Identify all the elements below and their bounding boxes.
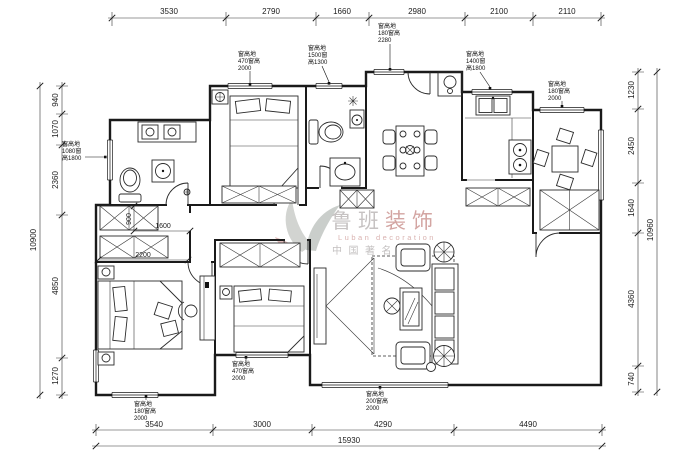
dim-label: 1600 [155,223,171,230]
dim-right: 1230 2450 1640 4360 740 10960 [627,68,660,396]
svg-text:窗高地: 窗高地 [62,140,80,148]
room-bedroom1 [212,90,298,203]
plant-table [427,346,455,372]
svg-text:2000: 2000 [232,376,246,382]
dining-chair [425,130,437,144]
room-kitchen [465,96,531,206]
annotation-line: 180窗高 [134,407,156,415]
storage-cabinet [540,190,599,230]
annotation-line: 窗高地 [134,400,152,408]
annotation-living-window: 窗高地 200窗高 2000 [366,386,388,412]
svg-text:470窗高: 470窗高 [232,367,254,375]
toilet-icon [309,120,343,144]
annotation-line: 200窗高 [366,397,388,405]
dim-label: 1270 [51,367,60,385]
dim-label-total: 15930 [338,436,361,445]
dim-label: 2110 [558,7,576,16]
svg-text:470窗高: 470窗高 [238,57,260,65]
annotation-line: 470窗高 [232,367,254,375]
svg-text:1500窗: 1500窗 [308,51,327,59]
dim-left: 940 1070 2360 4850 1270 10900 [29,82,68,399]
room-bath1 [309,96,364,186]
svg-text:窗高地: 窗高地 [134,400,152,408]
dim-label: 2360 [51,171,60,189]
square-table [552,146,578,172]
room-living [314,242,458,372]
annotation-line: 2000 [548,96,562,102]
floor-plan-page: 鲁班装饰 Luban decoration 中国著名品牌 [0,0,700,460]
dim-label: 3530 [160,7,178,16]
watermark-en: Luban decoration [338,233,436,242]
svg-text:窗高地: 窗高地 [378,22,396,30]
annotation-line: 窗高地 [366,390,384,398]
window-bath2-left [107,140,114,180]
nightstand [98,352,114,365]
svg-text:2000: 2000 [366,406,380,412]
armchair [396,342,430,369]
annotation-kitchen-window: 窗高地 1400窗 高1800 [466,50,491,90]
dim-label: 2790 [262,7,280,16]
annotation-line: 高1800 [466,64,486,72]
chair [533,149,549,166]
annotation-line: 高1300 [308,58,328,66]
dining-chair [383,130,395,144]
annotation-line: 窗高地 [378,22,396,30]
dim-label: 2100 [490,7,508,16]
bed [230,96,298,188]
annotation-line: 180窗高 [548,87,570,95]
svg-text:200窗高: 200窗高 [366,397,388,405]
watermark-cn-gray: 鲁班 [331,210,385,233]
annotation-line: 2280 [378,38,392,44]
svg-text:180窗高: 180窗高 [378,29,400,37]
svg-text:窗高地: 窗高地 [232,360,250,368]
dim-label: 4360 [627,290,636,308]
annotation-line: 470窗高 [238,57,260,65]
annotation-line: 1500窗 [308,51,327,59]
armchair [396,244,430,271]
annotation-line: 2000 [232,376,246,382]
svg-text:高1300: 高1300 [308,58,328,66]
svg-text:高1800: 高1800 [466,64,486,72]
dim-label: 1070 [51,120,60,138]
dim-label-total: 10900 [29,228,38,251]
room-leisure [533,128,599,230]
dim-label: 1230 [627,81,636,99]
annotation-bedroom3-window: 窗高地 180窗高 2000 [134,395,156,422]
dining-chair [383,156,395,170]
chair [556,128,573,144]
dim-label: 4290 [374,420,392,429]
window-kitchen-top [472,89,512,96]
bed [234,286,304,352]
annotation-line: 窗高地 [62,140,80,148]
floor-plan-drawing: 鲁班装饰 Luban decoration 中国著名品牌 [0,0,700,460]
svg-text:180窗高: 180窗高 [548,87,570,95]
svg-text:窗高地: 窗高地 [308,44,326,52]
room-bedroom2 [220,243,304,352]
annotation-line: 1080窗 [62,147,81,155]
annotation-line: 2000 [366,406,380,412]
tv-projection-lines [326,258,374,354]
window-bedroom2-bottom [236,352,288,359]
window-living-bottom [322,382,448,389]
dim-label: 940 [51,93,60,107]
svg-text:窗高地: 窗高地 [366,390,384,398]
closet [100,236,168,258]
kitchen-storage [466,188,530,206]
annotation-line: 1400窗 [466,57,485,65]
annotation-entry-window: 窗高地 180窗高 2280 [378,22,400,71]
plant-table [434,242,454,262]
svg-text:窗高地: 窗高地 [466,50,484,58]
dining-table [396,126,424,176]
svg-text:高1800: 高1800 [62,154,82,162]
watermark-cn: 鲁班装饰 [331,210,439,233]
chair [556,174,573,190]
washing-machine-icon [152,160,174,182]
nightstand [98,266,114,279]
annotation-bath2-window: 窗高地 1080窗 高1800 [62,140,107,162]
dim-label: 2450 [627,137,636,155]
nightstand [220,286,232,299]
vanity [138,122,196,142]
annotation-line: 窗高地 [238,50,256,58]
annotation-line: 窗高地 [232,360,250,368]
door-entry [408,72,430,94]
wardrobe [222,186,296,203]
window-bedroom3-bottom [112,392,158,399]
chair [581,149,597,166]
dim-label: 3000 [253,420,271,429]
dim-label: 3540 [145,420,163,429]
annotation-leisure-window: 窗高地 180窗高 2000 [548,80,570,108]
annotation-line: 窗高地 [548,80,566,88]
svg-text:2280: 2280 [378,38,392,44]
dim-label: 900 [126,213,133,225]
dim-label: 1660 [333,7,351,16]
kitchen-sink-icon [476,96,510,115]
shower-icon [348,96,358,106]
dim-label-total: 10960 [646,218,655,241]
annotation-line: 高1800 [62,154,82,162]
stove-icon [509,140,531,174]
door-rightroom [536,233,560,257]
dim-label: 2200 [135,252,151,259]
bed [98,281,182,349]
svg-text:180窗高: 180窗高 [134,407,156,415]
room-bath2 [119,122,196,202]
svg-text:窗高地: 窗高地 [238,50,256,58]
annotation-bath1-window: 窗高地 1500窗 高1300 [308,44,330,85]
window-right-wall [598,130,605,200]
basin-icon [330,158,360,186]
dim-label: 740 [627,372,636,386]
hall-closet [340,190,374,208]
coffee-table [400,288,422,330]
dim-top: 3530 2790 1660 2980 2100 2110 [108,7,605,26]
annotation-line: 窗高地 [308,44,326,52]
dim-bottom: 3540 3000 4290 4490 15930 [92,420,606,449]
svg-text:1400窗: 1400窗 [466,57,485,65]
entry-niche [438,72,462,96]
toilet-icon [119,168,141,202]
dim-label: 4490 [519,420,537,429]
dim-label: 2980 [408,7,426,16]
annotation-line: 180窗高 [378,29,400,37]
wardrobe [220,243,300,267]
annotation-line: 窗高地 [466,50,484,58]
dim-label: 1640 [627,199,636,217]
piano [200,276,215,340]
svg-text:窗高地: 窗高地 [548,80,566,88]
watermark-cn-red: 装饰 [385,210,439,233]
svg-text:2000: 2000 [548,96,562,102]
svg-text:1080窗: 1080窗 [62,147,81,155]
dining-chair [425,156,437,170]
nightstand [212,90,228,104]
annotation-bedroom1-window: 窗高地 470窗高 2000 [238,50,260,86]
dim-label: 4850 [51,277,60,295]
floor-drain-icon [184,189,190,195]
washer-icon [350,110,364,128]
tv-icon [314,268,326,344]
annotation-bedroom2-window: 窗高地 470窗高 2000 [232,356,254,382]
